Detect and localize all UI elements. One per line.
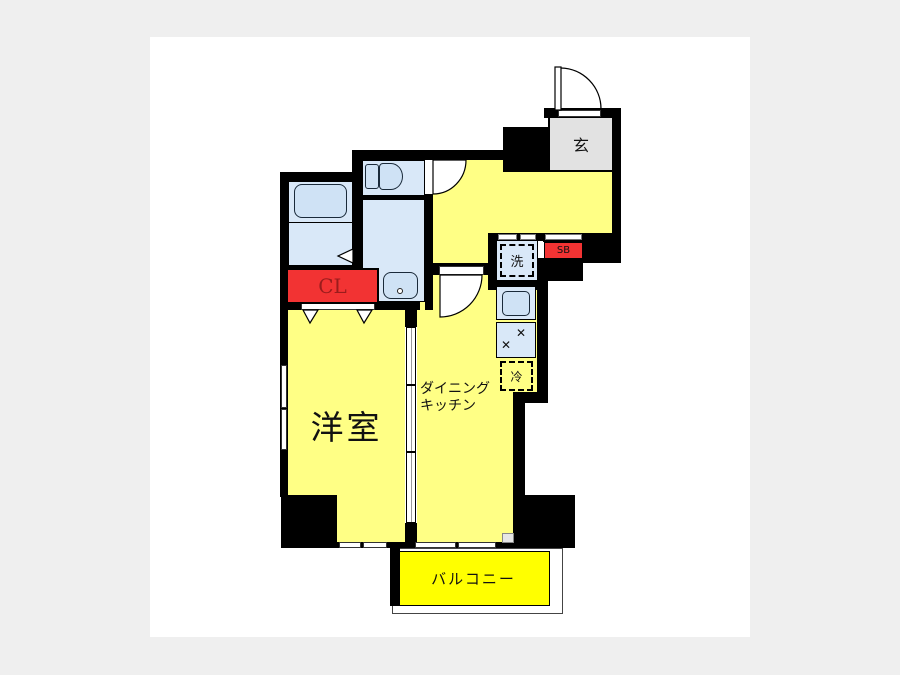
wall (513, 495, 575, 548)
wall (352, 150, 362, 272)
bathroom-divider (288, 222, 353, 223)
entrance-door-sill (558, 110, 601, 117)
entrance-door-leaf (555, 67, 561, 110)
plan-canvas: 玄 CL SB 洗 ✕ ✕ 冷 バルコニー (150, 37, 750, 637)
balcony-label: バルコニー (431, 568, 516, 589)
balcony: バルコニー (397, 551, 550, 606)
dk-door-sill (439, 266, 484, 275)
bathtub (294, 184, 347, 218)
sliding-door-tick (407, 384, 415, 386)
shoebox-sill (545, 234, 582, 240)
sliding-door-track (411, 328, 412, 522)
wall (362, 195, 425, 199)
closet-label: CL (318, 274, 347, 298)
window (415, 542, 456, 548)
wall (405, 308, 417, 327)
sliding-door-tick (407, 451, 415, 453)
room-dining-kitchen-lower (417, 397, 513, 542)
room-entrance: 玄 (548, 116, 614, 172)
wall (537, 258, 583, 281)
wall (390, 548, 400, 606)
stove-burner-icon: ✕ (516, 326, 526, 340)
gas-stove: ✕ ✕ (496, 322, 536, 358)
dining-kitchen-label: ダイニング キッチン (420, 381, 515, 417)
window (458, 542, 496, 548)
wall (503, 127, 550, 172)
dining-kitchen-label-line1: ダイニング (420, 381, 490, 398)
western-room-label: 洋室 (288, 308, 405, 542)
toilet-bowl (379, 163, 403, 190)
washer-label: 洗 (510, 251, 523, 270)
toilet-tank (365, 164, 379, 189)
wall (513, 392, 548, 403)
toilet-door-opening (425, 160, 433, 194)
stove-burner-icon: ✕ (501, 338, 511, 352)
wall (537, 281, 548, 393)
wall (280, 172, 352, 182)
washer-box: 洗 (496, 240, 538, 281)
pipe-space (502, 533, 514, 543)
kitchen-sink (502, 291, 530, 316)
shoebox-box: SB (544, 242, 583, 259)
sliding-door (406, 327, 416, 523)
floor-plan-page: { "title": "apartment-floor-plan", "colo… (0, 0, 900, 675)
entrance-label: 玄 (573, 132, 589, 156)
dining-kitchen-label-line2: キッチン (420, 398, 476, 415)
window (339, 542, 361, 548)
window (363, 542, 387, 548)
shoebox-label: SB (557, 245, 570, 256)
washer-dashed-pan: 洗 (500, 244, 534, 277)
washbasin (383, 272, 418, 299)
wall (583, 233, 621, 263)
window (281, 365, 287, 408)
closet-box: CL (286, 268, 379, 304)
entrance-door-swing-icon (561, 68, 601, 109)
window (281, 409, 287, 450)
kitchen-sink-unit (496, 286, 536, 320)
washbasin-drain (397, 288, 403, 294)
